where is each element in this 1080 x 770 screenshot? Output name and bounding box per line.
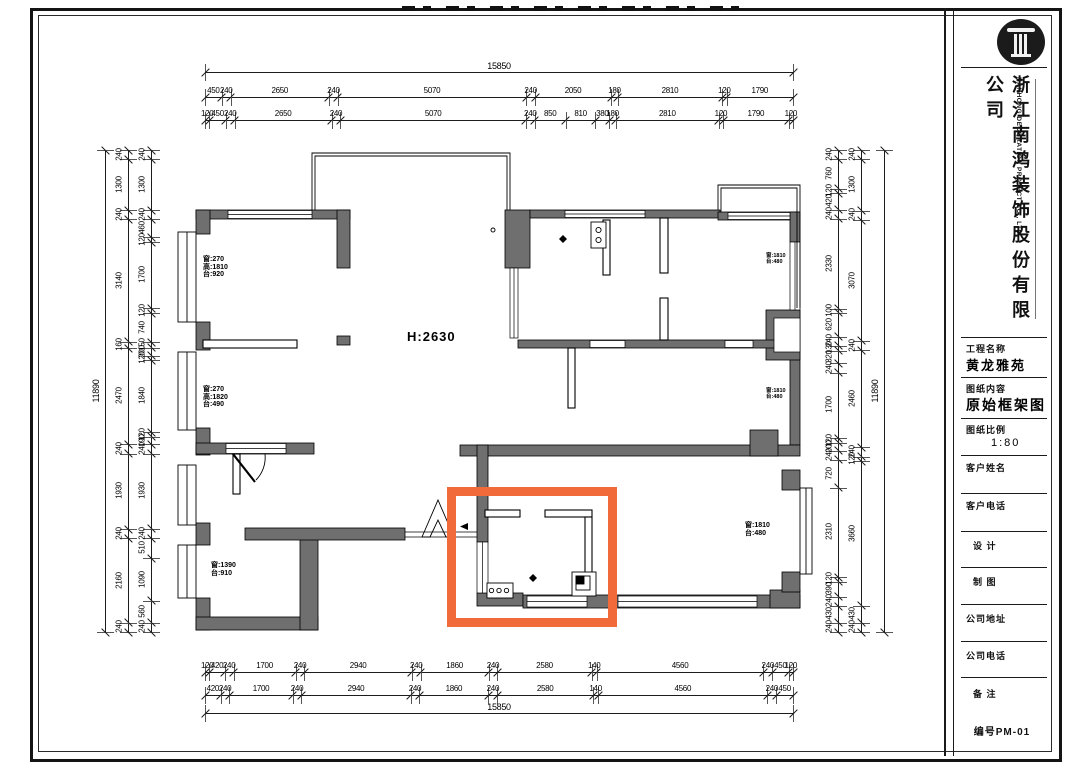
field-value-scale: 1:80 [991,437,1020,449]
field-label-project: 工程名称 [966,342,1006,355]
dim-label: 15850 [474,702,524,712]
dim-label: 5070 [407,86,457,95]
dim-chain: 15850 [205,701,793,714]
dim-label: 240 [468,661,518,670]
dim-label: 240 [848,605,857,649]
dim-chain: 1204202401700240294024018602402580140456… [205,660,793,673]
dim-label: 240 [825,192,834,236]
dim-label: 2460 [848,376,857,420]
field-label-designer: 设 计 [973,539,997,552]
dim-label: 240 [115,511,124,555]
cropped-text-artifact [402,6,747,11]
dim-label: 180 [589,86,639,95]
dim-label: 240 [308,86,358,95]
dim-label: 3660 [848,511,857,555]
dim-label: 11890 [870,369,880,413]
field-label-content: 图纸内容 [966,382,1006,395]
drawing-sheet: 浙江南鸿装饰股份有限公司 NANHONG DECORATION PROJECT … [0,0,1080,770]
dim-label: 720 [825,451,834,495]
dim-label: 240 [138,605,147,649]
dim-label: 450 [760,684,810,693]
field-label-drafter: 制 图 [973,575,997,588]
dim-label: 240 [115,427,124,471]
dim-label: 160 [115,322,124,366]
dim-label: 180 [588,109,638,118]
dim-label: 2580 [519,661,569,670]
dim-chain: 24013002403140160247024019302402160240 [116,150,129,632]
dim-label: 15850 [474,61,524,71]
dim-label: 240 [275,661,325,670]
dim-label: 2330 [825,241,834,285]
window-sill-label: 窗:270 高:1820 台:490 [203,386,228,409]
field-value-content: 原始框架图 [966,395,1046,415]
dim-label: 1790 [735,86,785,95]
dim-label: 240 [115,605,124,649]
dim-label: 4560 [655,661,705,670]
dim-label: 120 [766,109,816,118]
window-sill-label: 窗:1810 台:480 [766,253,786,265]
sheet-number: 编号PM-01 [953,723,1051,738]
dim-label: 240 [205,109,255,118]
window-sill-label: 窗:1390 台:910 [211,562,236,577]
dim-label: 2580 [520,684,570,693]
dim-label: 2650 [258,109,308,118]
field-label-client-phone: 客户电话 [966,499,1006,512]
dim-label: 240 [272,684,322,693]
dim-label: 1840 [138,374,147,418]
dim-label: 240 [201,86,251,95]
window-sill-label: 窗:1810 台:480 [745,522,770,537]
company-name-en: NANHONG DECORATION PROJECT CO., LTD. [1015,77,1022,277]
dim-label: 240 [468,684,518,693]
dim-label: 240 [848,323,857,367]
dim-label: 240 [825,605,834,649]
dim-label: 5070 [408,109,458,118]
dim-label: 2940 [333,661,383,670]
dim-label: 2940 [331,684,381,693]
dim-chain: 2407601204202402330100620240130320240170… [826,150,839,632]
field-label-scale: 图纸比例 [966,423,1006,436]
dim-chain: 15850 [205,60,793,73]
field-label-company-phone: 公司电话 [966,649,1006,662]
company-logo-icon [997,19,1045,65]
dim-chain: 2401300240460120170012074015020012018401… [139,150,152,632]
window-sill-label: 窗:270 高:1810 台:920 [203,256,228,279]
field-value-project: 黄龙雅苑 [966,355,1026,374]
dim-label: 1930 [138,469,147,513]
dim-label: 240 [138,426,147,470]
company-name-cn: 浙江南鸿装饰股份有限公司 [981,75,1033,345]
dim-label: 140 [571,684,621,693]
dim-label: 2810 [645,86,695,95]
dim-label: 1930 [115,469,124,513]
window-sill-label: 窗:1810 台:480 [766,388,786,400]
dim-label: 120 [766,661,816,670]
dim-label: 240 [848,193,857,237]
dim-label: 120 [848,437,857,481]
dim-label: 240 [115,192,124,236]
dim-chain: 45024026502405070240205018028101201790 [205,85,793,98]
dim-label: 2810 [642,109,692,118]
door-swing-arc [256,454,265,480]
fixture-box-icon [591,222,606,248]
dim-label: 11890 [91,369,101,413]
dim-label: 2470 [115,374,124,418]
dim-label: 140 [569,661,619,670]
highlight-box [447,487,617,627]
dim-label: 3070 [848,258,857,302]
dim-label: 2160 [115,558,124,602]
field-label-client-name: 客户姓名 [966,461,1006,474]
dim-chain: 2401300240307024024602401203660430240 [849,150,862,632]
title-block: 浙江南鸿装饰股份有限公司 NANHONG DECORATION PROJECT … [953,15,1051,750]
dim-label: 2310 [825,510,834,554]
dim-label: 4560 [658,684,708,693]
titleblock-left-rule [944,8,946,756]
ceiling-height-label: H:2630 [407,329,456,344]
field-label-company-address: 公司地址 [966,612,1006,625]
ceiling-light-icon [559,235,567,243]
dim-label: 3140 [115,258,124,302]
dim-chain: 11890 [93,150,106,632]
field-label-remarks: 备 注 [973,687,997,700]
dim-chain: 11890 [872,150,885,632]
dim-chain: 4202401700240294024018602402580140456024… [205,683,793,696]
dim-label: 2650 [255,86,305,95]
dim-chain: 1204502402650240507024085081038018028101… [205,108,793,121]
dim-label: 240 [311,109,361,118]
